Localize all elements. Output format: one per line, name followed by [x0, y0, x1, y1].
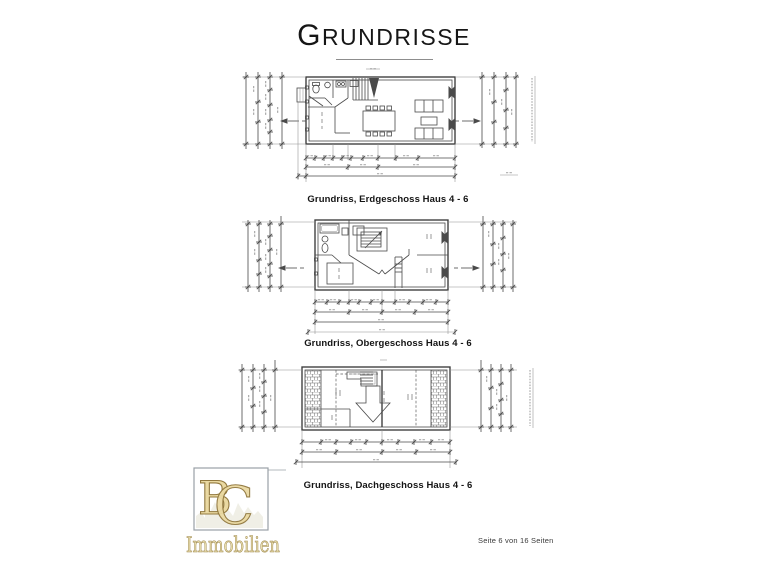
dg-dimensions-left	[238, 360, 302, 432]
og-stairs	[357, 228, 387, 251]
caption-obergeschoss: Grundriss, Obergeschoss Haus 4 - 6	[232, 338, 544, 349]
page-title-rest: RUNDRISSE	[322, 24, 471, 50]
logo-letter-c: C	[214, 477, 254, 537]
eg-dining-table	[363, 106, 395, 136]
og-dimensions-right	[448, 216, 517, 292]
logo-wordmark: Immobilien	[186, 533, 280, 557]
eg-dimensions-right	[455, 72, 519, 148]
eg-stairs	[353, 78, 379, 100]
floorplan-obergeschoss-drawing	[232, 212, 544, 352]
company-logo: B C Immobilien	[184, 462, 288, 562]
eg-wc-room	[309, 80, 333, 105]
eg-kitchen-fixtures	[336, 80, 358, 98]
floorplan-erdgeschoss-drawing	[232, 62, 544, 192]
eg-entrance-porch	[297, 88, 306, 102]
dg-side-annotation	[530, 368, 533, 428]
og-lower-left-room	[315, 258, 354, 284]
document-page: GRUNDRISSE	[0, 0, 768, 567]
title-underline	[336, 59, 433, 60]
dg-dimensions-bottom	[294, 430, 458, 468]
eg-dimensions-left	[242, 72, 306, 149]
floorplan-dachgeschoss-drawing	[232, 356, 544, 478]
dg-center-walls	[347, 370, 382, 427]
page-title-initial: G	[297, 19, 322, 52]
page-title: GRUNDRISSE	[0, 21, 768, 51]
page-indicator: Seite 6 von 16 Seiten	[478, 536, 554, 545]
eg-side-annotation	[532, 76, 535, 144]
caption-erdgeschoss: Grundriss, Erdgeschoss Haus 4 - 6	[232, 194, 544, 205]
og-dimensions-left	[242, 216, 315, 292]
eg-dimensions-bottom	[296, 102, 518, 182]
eg-sofa-group	[415, 100, 443, 139]
og-section-arrows	[278, 265, 480, 270]
dg-dimensions-right	[450, 360, 517, 432]
dg-outer-walls	[302, 367, 450, 430]
og-center-walls	[349, 255, 409, 288]
og-right-rooms	[409, 231, 448, 279]
og-dimensions-bottom	[306, 290, 457, 335]
